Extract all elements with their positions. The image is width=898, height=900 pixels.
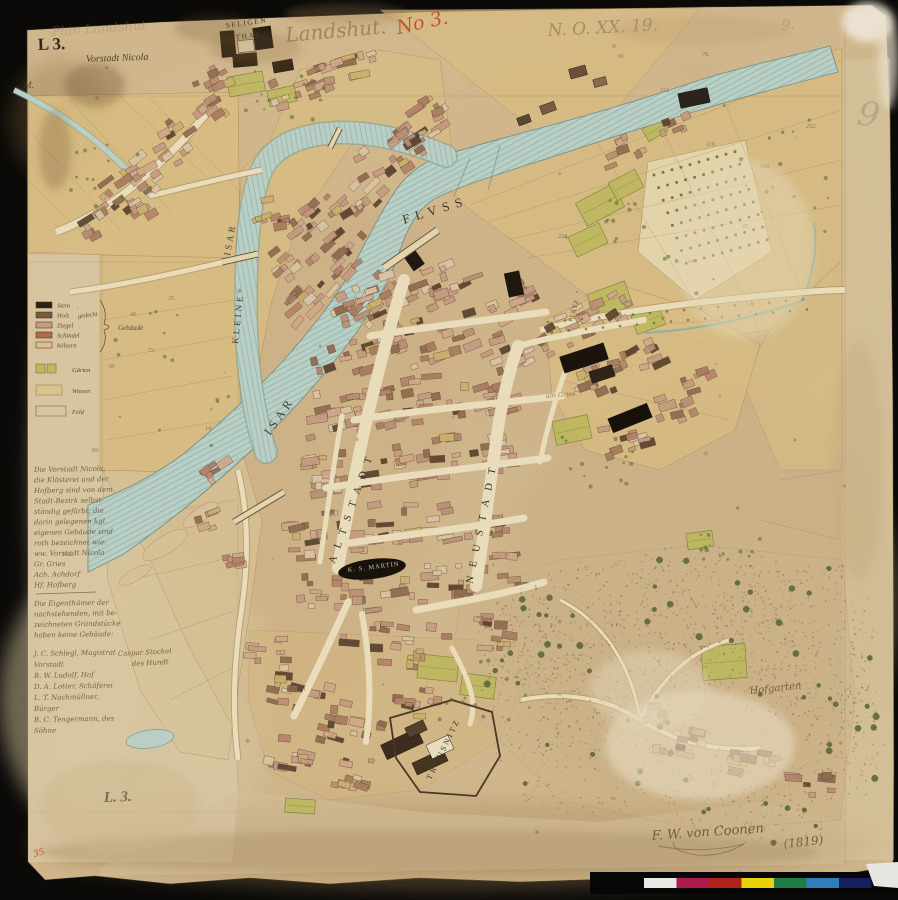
tree — [613, 437, 617, 441]
foxing-speck — [719, 395, 722, 398]
tree — [748, 590, 753, 595]
foxing-speck — [723, 104, 726, 107]
building — [827, 788, 835, 793]
tree — [631, 451, 634, 454]
tree — [86, 178, 89, 181]
tree — [524, 694, 527, 697]
plot-number: 46. — [130, 311, 138, 318]
legend-swatch — [36, 342, 52, 348]
tree — [210, 444, 213, 447]
tree — [700, 533, 702, 535]
tree — [824, 176, 828, 180]
tree — [547, 595, 553, 601]
tree — [565, 440, 568, 443]
tree — [121, 196, 123, 198]
margin-note-line: ständig gefärbt, die — [34, 507, 104, 516]
roadside-tree — [806, 308, 809, 311]
orchard-tree — [653, 174, 656, 177]
building — [302, 573, 309, 580]
building — [304, 550, 315, 559]
label-margin-m: M. — [23, 80, 34, 90]
building — [430, 455, 445, 463]
tree — [83, 148, 87, 152]
building — [418, 599, 427, 604]
margin-note-line: eigenen Gebäude sind — [34, 528, 114, 537]
tree — [653, 585, 657, 589]
tree — [149, 312, 152, 315]
tree — [94, 204, 98, 208]
tree — [263, 108, 265, 110]
tree — [117, 353, 121, 357]
tree — [571, 614, 575, 618]
tree — [642, 225, 646, 229]
colorbar-segment — [677, 878, 710, 888]
tree — [484, 681, 490, 687]
tree — [244, 109, 248, 113]
tree — [507, 718, 511, 722]
orchard-tree — [671, 196, 674, 199]
building — [424, 563, 430, 568]
tree — [645, 619, 651, 625]
roadside-tree — [632, 313, 635, 316]
tree — [107, 159, 110, 162]
tree — [544, 613, 548, 617]
colorbar-segment — [709, 878, 742, 888]
tree — [256, 100, 259, 103]
tree — [519, 596, 525, 602]
orchard-tree — [707, 158, 710, 161]
tree — [516, 676, 518, 678]
margin-note-line: Söhne — [34, 727, 56, 735]
building — [194, 515, 202, 523]
tree — [227, 395, 230, 398]
tree — [294, 96, 297, 99]
tree — [750, 550, 753, 553]
tree — [569, 467, 572, 470]
tree — [523, 781, 527, 785]
orchard-tree — [693, 176, 696, 179]
legend-swatch — [36, 364, 45, 373]
foxing-speck — [612, 44, 616, 48]
foxing-speck — [712, 278, 714, 280]
tree — [696, 633, 703, 640]
foxing-speck — [224, 372, 226, 374]
building — [316, 596, 327, 600]
tree — [158, 429, 161, 432]
building — [330, 705, 338, 714]
margin-note-line: roth bezeichnet wie: — [34, 538, 107, 547]
legend-swatch — [36, 385, 62, 395]
legend-label: Holz — [56, 313, 70, 320]
building — [255, 216, 262, 222]
building — [296, 594, 305, 602]
tree — [486, 659, 490, 663]
tree — [303, 83, 306, 86]
tree — [633, 202, 637, 206]
building — [822, 772, 831, 780]
foxing-speck — [496, 602, 498, 604]
tree — [505, 677, 509, 681]
legend-label: Feld — [71, 409, 85, 416]
orchard-tree — [698, 161, 701, 164]
tree — [823, 230, 826, 233]
plot-number: 14. — [205, 425, 213, 432]
tree — [310, 79, 314, 83]
foxing-speck — [319, 345, 322, 348]
foxing-speck — [374, 202, 378, 206]
tree — [493, 668, 498, 673]
tree — [461, 700, 465, 704]
landshut-map-svg: 91.76.113.119.104.252.97.228.344.46.58.8… — [0, 0, 898, 900]
foxing-speck — [535, 830, 539, 834]
tree — [667, 601, 673, 607]
building — [351, 547, 364, 553]
legend-group-label: Gebäude — [118, 324, 143, 332]
tree — [254, 70, 256, 72]
building — [310, 590, 322, 594]
plot-number: 252. — [806, 124, 817, 130]
tree — [722, 552, 725, 555]
tree — [855, 725, 861, 731]
tree — [781, 131, 785, 135]
tree — [290, 115, 294, 119]
orchard-tree — [666, 184, 669, 187]
legend-swatch — [36, 322, 52, 328]
tree — [792, 130, 794, 132]
building — [473, 617, 481, 623]
color-calibration-bar — [644, 878, 872, 888]
tree — [807, 591, 812, 596]
building — [406, 660, 414, 669]
tree — [768, 136, 771, 139]
building — [319, 455, 327, 460]
roadside-tree — [602, 326, 605, 329]
tree — [538, 651, 544, 657]
building — [381, 622, 394, 627]
orchard-tree — [716, 155, 719, 158]
tree — [743, 606, 749, 612]
building — [409, 480, 418, 488]
tree — [793, 650, 799, 656]
tree — [763, 801, 767, 805]
orchard-tree — [675, 209, 678, 212]
foxing-speck — [334, 478, 336, 480]
building — [497, 573, 508, 579]
building — [493, 552, 506, 559]
tree — [735, 580, 740, 585]
margin-note-line: D. A. Lotter, Schäferei — [33, 682, 113, 691]
plot-number: 76. — [702, 52, 710, 58]
building — [368, 519, 376, 527]
tree — [577, 642, 584, 649]
building — [293, 533, 301, 540]
tree — [170, 358, 174, 362]
foxing-speck — [839, 741, 842, 744]
building — [454, 434, 461, 441]
tree — [580, 462, 584, 466]
building — [464, 533, 473, 540]
building — [507, 552, 518, 560]
building — [390, 643, 401, 651]
margin-note-line: B. C. Tengermann, des — [33, 715, 115, 724]
building — [442, 633, 452, 639]
foxing-speck — [452, 416, 454, 418]
building — [427, 516, 440, 523]
foxing-speck — [793, 438, 796, 441]
tree — [828, 697, 832, 701]
tree — [652, 607, 657, 612]
tree — [707, 533, 711, 537]
tree — [827, 566, 832, 571]
building — [288, 547, 300, 552]
tree — [776, 619, 782, 625]
tree — [663, 257, 667, 261]
tree — [622, 462, 625, 465]
building — [457, 410, 465, 418]
foxing-speck — [559, 172, 561, 174]
roadside-tree — [683, 309, 686, 312]
legend-label: Wiesen — [72, 388, 90, 395]
building — [334, 715, 348, 725]
tree — [516, 681, 520, 685]
tree — [557, 644, 562, 649]
foxing-speck — [576, 291, 578, 293]
tree — [481, 715, 485, 719]
margin-note-line: darin gelegenen kgl. — [34, 517, 107, 526]
tree — [508, 651, 513, 656]
tree — [319, 98, 322, 101]
tree — [627, 203, 629, 205]
building — [315, 482, 322, 490]
building — [381, 458, 388, 464]
legend-label: Schindel — [57, 333, 80, 340]
tree — [479, 660, 483, 664]
tree — [873, 713, 880, 720]
building — [371, 484, 381, 490]
tree — [473, 703, 477, 707]
plot-number: 84. — [92, 447, 100, 454]
tree — [865, 704, 870, 709]
tree — [702, 557, 705, 560]
label-bergl: Bergl — [286, 684, 306, 694]
foxing-speck — [553, 708, 555, 710]
foxing-speck — [210, 408, 213, 411]
map-photo: 91.76.113.119.104.252.97.228.344.46.58.8… — [0, 0, 898, 900]
roadside-tree — [547, 321, 550, 324]
tree — [729, 638, 734, 643]
tree — [300, 74, 304, 78]
margin-note-line: die Klösterei und der — [34, 475, 110, 484]
foxing-speck — [843, 485, 846, 488]
building — [394, 450, 403, 457]
legend-swatch — [36, 312, 52, 318]
building — [352, 596, 363, 605]
plot-number: 113. — [660, 88, 670, 94]
tree — [624, 482, 628, 486]
plot-number: 91. — [618, 54, 626, 60]
legend-label: hölzern — [57, 343, 77, 350]
foxing-speck — [715, 363, 717, 365]
foxing-speck — [77, 308, 79, 310]
roadside-tree — [564, 319, 567, 322]
roadside-tree — [551, 331, 554, 334]
foxing-speck — [736, 506, 740, 510]
tree — [778, 162, 782, 166]
orchard-tree — [671, 168, 674, 171]
tree — [93, 187, 96, 190]
tree — [726, 558, 729, 561]
tree — [827, 742, 832, 747]
building — [336, 460, 342, 467]
orchard-tree — [702, 173, 705, 176]
tree — [609, 199, 612, 202]
tree — [624, 455, 627, 458]
roadside-tree — [615, 315, 618, 318]
foxing-speck — [245, 739, 249, 743]
tree — [707, 807, 711, 811]
legend-label: Stein — [57, 303, 70, 310]
roadside-tree — [619, 325, 622, 328]
margin-note-line: Vorstadt — [34, 660, 64, 669]
tree — [136, 153, 140, 157]
tree — [544, 641, 550, 647]
margin-note-line: Ach. Achdorf — [33, 570, 82, 579]
margin-note-line: Stadt-Bezirk selbst- — [34, 496, 104, 505]
foxing-speck — [271, 558, 273, 560]
orchard-tree — [671, 224, 674, 227]
roadside-tree — [585, 328, 588, 331]
tree — [738, 549, 742, 553]
margin-note-line: nachstehenden, mit be- — [34, 609, 118, 618]
building — [423, 449, 430, 457]
building — [433, 570, 441, 575]
tree — [113, 338, 117, 342]
tree — [613, 240, 616, 243]
tree — [94, 147, 96, 149]
building — [455, 564, 461, 568]
margin-note-line: Gr. Gries — [34, 560, 66, 569]
foxing-speck — [419, 269, 422, 272]
orchard-tree — [657, 186, 660, 189]
building — [425, 687, 434, 694]
tree — [785, 806, 790, 811]
tree — [438, 717, 442, 721]
building — [404, 503, 419, 507]
building — [409, 592, 414, 599]
tree — [126, 200, 129, 203]
tree — [614, 201, 618, 205]
tree — [154, 310, 157, 313]
tree — [814, 824, 818, 828]
foxing-speck — [723, 653, 725, 655]
tree — [163, 355, 167, 359]
building — [427, 583, 439, 588]
plot-number: 35. — [167, 296, 176, 302]
orchard-tree — [662, 199, 665, 202]
foxing-speck — [491, 647, 494, 650]
building — [332, 580, 342, 587]
margin-note-line: J. C. Schlegl, Magistrat — [32, 649, 116, 658]
legend-swatch — [47, 364, 56, 373]
tree — [666, 255, 670, 259]
tree — [589, 484, 593, 488]
roadside-tree — [598, 316, 601, 319]
foxing-speck — [704, 452, 708, 456]
tree — [867, 655, 872, 660]
building — [370, 644, 383, 652]
building — [278, 734, 291, 742]
building — [316, 367, 322, 375]
tree — [587, 669, 591, 673]
legend-swatch — [36, 302, 52, 308]
margin-note-line: B. W. Ludolf, Hof — [33, 671, 95, 680]
tree — [808, 118, 811, 121]
orchard-tree — [734, 150, 737, 153]
tree — [702, 810, 706, 814]
tree — [627, 208, 631, 212]
building — [412, 419, 424, 426]
tree — [872, 775, 878, 781]
tree — [748, 555, 751, 558]
building — [324, 76, 335, 85]
building — [458, 580, 464, 585]
tree — [311, 117, 315, 121]
roadside-tree — [581, 318, 584, 321]
building — [406, 640, 413, 644]
roadside-tree — [636, 323, 639, 326]
margin-note-line: Bürger — [33, 705, 60, 713]
tree — [683, 558, 689, 564]
margin-note-line: haben keine Gebäude: — [34, 630, 114, 639]
orchard-tree — [689, 163, 692, 166]
tree — [537, 612, 542, 617]
building — [310, 530, 317, 539]
tree — [789, 586, 795, 592]
tree — [215, 398, 219, 402]
building — [414, 713, 426, 719]
colorbar-segment — [774, 878, 807, 888]
building — [431, 392, 441, 401]
colorbar-segment — [644, 878, 677, 888]
building — [280, 665, 289, 672]
plot-number: 58. — [108, 364, 116, 370]
foxing-speck — [355, 438, 359, 442]
foxing-speck — [492, 563, 494, 565]
tree — [260, 93, 262, 95]
tree — [521, 605, 527, 611]
tree — [826, 748, 832, 754]
tree — [583, 475, 585, 477]
building — [276, 636, 288, 642]
foxing-speck — [565, 236, 567, 238]
tree — [802, 808, 807, 813]
tree — [500, 659, 504, 663]
building — [809, 792, 816, 798]
foxing-speck — [382, 683, 384, 685]
foxing-speck — [694, 291, 698, 295]
tree — [656, 557, 662, 563]
building — [313, 390, 321, 399]
tree — [629, 462, 633, 466]
tree — [703, 545, 707, 549]
building — [275, 675, 287, 683]
tree — [749, 565, 751, 567]
roadside-tree — [670, 320, 673, 323]
building — [341, 594, 347, 599]
roadside-tree — [649, 312, 652, 315]
margin-note-line: Die Eigenthümer der — [33, 599, 110, 608]
foxing-speck — [95, 96, 99, 100]
